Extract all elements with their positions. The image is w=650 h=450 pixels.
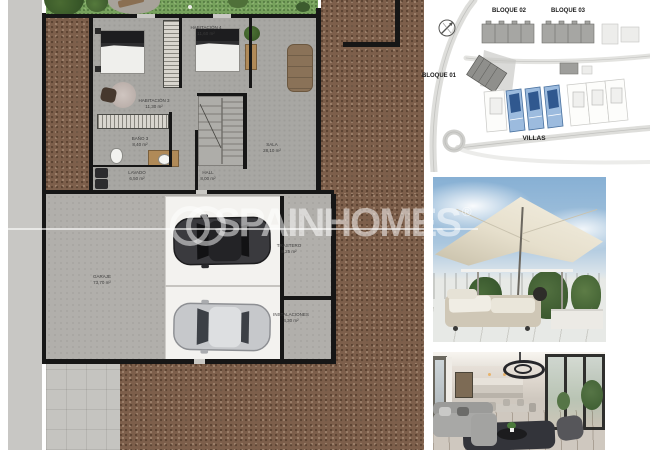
wall xyxy=(89,14,93,194)
brochure-page: HABITACIÓN 311,30 m² HABITACIÓN 411,60 m… xyxy=(0,0,650,450)
armchair xyxy=(555,414,584,441)
soil-right-top xyxy=(321,0,424,194)
wall xyxy=(331,194,336,364)
bush-icon xyxy=(296,2,310,12)
stall-divider xyxy=(165,285,280,287)
planter-box xyxy=(551,309,603,329)
daybed-cushion xyxy=(491,298,535,313)
terrace-photo xyxy=(433,177,606,342)
wall xyxy=(249,18,252,88)
site-plan: BLOQUE 02 BLOQUE 03 BLOQUE 01 VILLAS xyxy=(420,0,650,172)
staircase xyxy=(198,96,246,166)
wall xyxy=(46,190,334,194)
side-table xyxy=(533,287,547,301)
sofa-pillow xyxy=(439,407,451,416)
label-villas: VILLAS xyxy=(522,135,546,142)
sofa-pillow xyxy=(457,407,469,416)
soil-right-mid xyxy=(336,194,424,364)
room-label-bano3: BAÑO 38,40 m² xyxy=(132,136,149,148)
highlighted-villas xyxy=(506,85,563,132)
sofa-chaise xyxy=(471,414,497,446)
plant-icon xyxy=(244,26,260,41)
wall xyxy=(42,13,46,364)
daybed-wheel xyxy=(525,326,530,331)
armchair xyxy=(100,87,118,104)
bed-fold xyxy=(101,43,144,47)
bed xyxy=(100,30,145,74)
sofa xyxy=(287,44,313,92)
room-label-trastero: TRASTERO8,25 m² xyxy=(277,243,302,255)
wall xyxy=(44,359,336,364)
room-label-habitacion4: HABITACIÓN 411,60 m² xyxy=(191,25,222,37)
kitchen-counter xyxy=(473,393,523,398)
washer-icon xyxy=(95,168,108,178)
driveway xyxy=(46,364,120,450)
wall xyxy=(169,112,172,167)
room-label-habitacion3: HABITACIÓN 311,30 m² xyxy=(139,98,170,110)
door-gap xyxy=(137,14,155,18)
room-label-garaje: GARAJE73,70 m² xyxy=(93,274,111,286)
dining-chair xyxy=(503,399,510,406)
wall xyxy=(282,296,333,300)
wall-art xyxy=(455,372,473,398)
car-silver xyxy=(172,297,273,357)
soil-left xyxy=(46,16,89,190)
door-gap xyxy=(213,14,231,18)
room-label-sala: SALA28,10 m² xyxy=(263,142,281,154)
soil-bottom xyxy=(120,364,424,450)
kitchen-cabinets xyxy=(473,378,523,385)
car-dark xyxy=(172,211,273,271)
daybed-backrest xyxy=(447,289,477,299)
side-path xyxy=(8,0,42,450)
wall xyxy=(89,14,320,18)
door-gap xyxy=(194,359,205,364)
garden-dot xyxy=(188,5,192,9)
nightstand xyxy=(95,66,101,72)
wall xyxy=(195,130,198,192)
outdoor-plant xyxy=(581,380,603,410)
pendant-light xyxy=(488,373,491,376)
wall xyxy=(93,165,170,167)
room-label-lavado: LAVADO6,50 m² xyxy=(128,170,146,182)
floor-plan: HABITACIÓN 311,30 m² HABITACIÓN 411,60 m… xyxy=(0,0,425,450)
nightstand xyxy=(95,28,101,34)
dining-table xyxy=(495,404,529,412)
label-bloque-03: BLOQUE 03 xyxy=(551,8,586,14)
bed-fold xyxy=(196,41,239,45)
wardrobe xyxy=(163,20,180,88)
room-label-hall: HALL8,00 m² xyxy=(200,170,215,182)
label-bloque-02: BLOQUE 02 xyxy=(492,8,527,14)
wall xyxy=(197,93,246,96)
wall xyxy=(179,18,182,88)
wall xyxy=(280,196,284,359)
bed-pillows xyxy=(101,31,144,43)
wall xyxy=(243,93,247,169)
villa-plots-right xyxy=(567,79,628,126)
dryer-icon xyxy=(95,179,108,189)
wall xyxy=(395,0,400,46)
daybed-wheel xyxy=(453,326,458,331)
room-label-instalaciones: INSTALACIONES4,30 m² xyxy=(273,312,309,324)
wall xyxy=(343,42,400,47)
villa-plots-left xyxy=(484,90,507,132)
dining-chair xyxy=(517,399,524,406)
door-gap xyxy=(196,190,207,194)
dining-chair xyxy=(529,403,536,412)
label-bloque-01: BLOQUE 01 xyxy=(422,73,457,79)
bloque03-building xyxy=(542,21,594,43)
wall xyxy=(42,14,93,18)
wall xyxy=(316,8,321,194)
wardrobe xyxy=(97,114,169,129)
living-room-photo xyxy=(433,352,605,450)
chandelier-inner xyxy=(514,364,532,374)
table-vase xyxy=(510,428,514,432)
bloque02-building xyxy=(482,21,534,43)
outdoor-plant xyxy=(557,392,570,410)
toilet-icon xyxy=(110,148,123,164)
